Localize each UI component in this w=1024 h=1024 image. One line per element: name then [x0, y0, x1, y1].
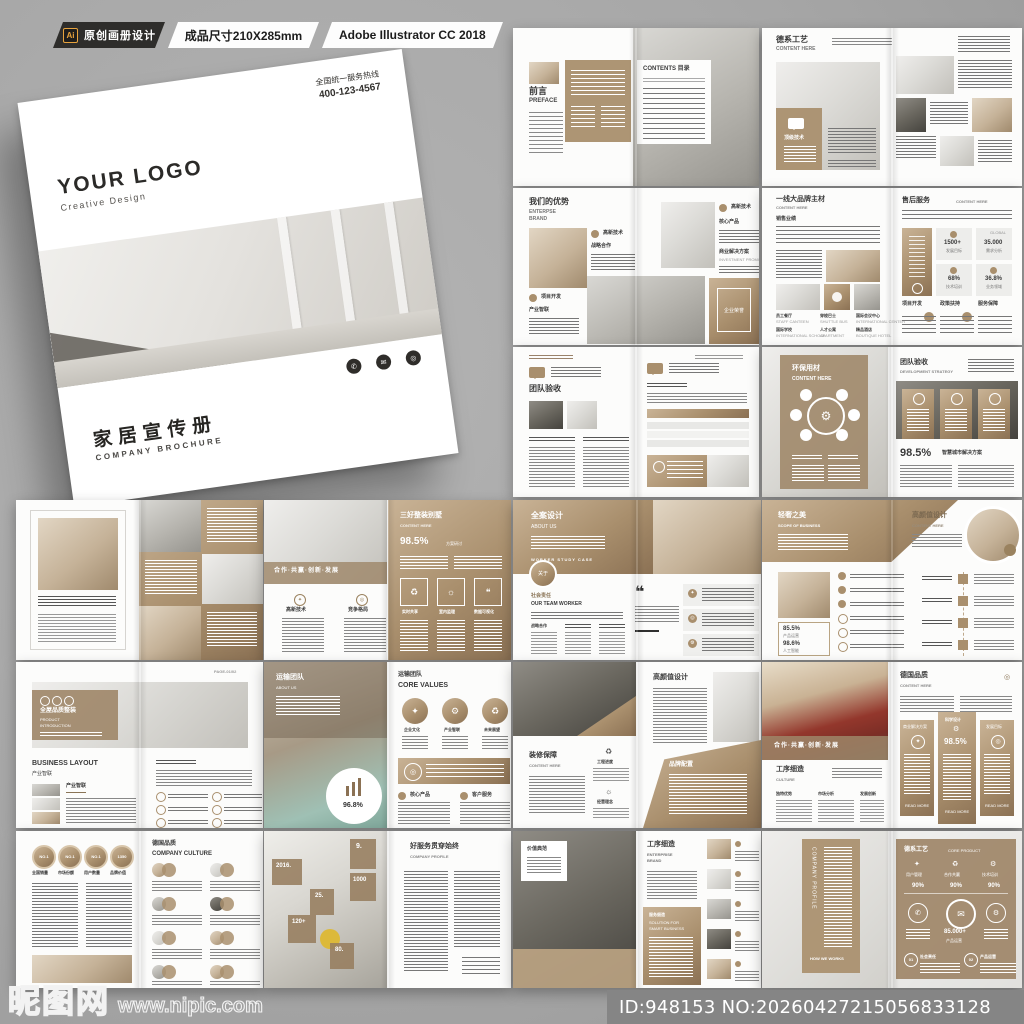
bedroom-photo [202, 554, 263, 604]
medal: NO.1 [84, 845, 108, 869]
spread-title: 运输团队 [276, 674, 304, 682]
circ: ♻ [482, 698, 508, 724]
lines [776, 226, 880, 246]
lines [828, 465, 860, 483]
spread-timeline-profile: 9.2016.100025.120+80.好服务贯穿始终COMPANY PROF… [264, 831, 511, 988]
txt: INTERNATIONAL CENTER [856, 320, 905, 324]
spread-transport-core-values: 运输团队ABOUT US96.8%运输团队CORE VALUES✦⚙♻企业文化产… [264, 662, 511, 828]
wardrobe-photo [139, 500, 201, 552]
lines [940, 316, 974, 336]
illustrator-logo-icon: Ai [63, 28, 78, 43]
lines [38, 596, 116, 608]
panel [958, 596, 968, 606]
lines [776, 800, 812, 822]
circ [220, 931, 234, 945]
circ [735, 871, 741, 877]
lines [653, 688, 707, 744]
lines [922, 598, 952, 604]
sofa-photo [653, 500, 761, 574]
web-icon: ◎ [405, 349, 422, 366]
txt: CONTENT HERE [900, 684, 932, 688]
txt: CONTENT HERE [956, 200, 988, 204]
recycle-icon: ♻ [605, 748, 612, 757]
photo [567, 401, 597, 429]
chat [529, 367, 545, 378]
photo [529, 62, 559, 84]
lines [828, 455, 858, 460]
lines [529, 447, 575, 489]
lines [902, 316, 936, 336]
circ [156, 818, 166, 828]
stat-value: 35.000 [984, 240, 1002, 247]
txt: 科学设计 [945, 718, 961, 722]
lines [643, 88, 705, 140]
photo [529, 401, 563, 429]
lines [474, 620, 502, 652]
txt: CORE PRODUCT [948, 849, 980, 853]
lines [850, 602, 904, 607]
header-segment-software: Adobe Illustrator CC 2018 [322, 22, 503, 48]
txt: ⚙ [953, 726, 959, 734]
txt: 经营理念 [597, 800, 613, 804]
frame: ☼ [437, 578, 465, 606]
spread-title-right: 高颜值设计 [653, 674, 688, 682]
circ [40, 696, 50, 706]
medal: 1350 [110, 845, 134, 869]
lines [599, 632, 625, 654]
circ: ◎ [404, 763, 422, 781]
circ: ⚙ [442, 698, 468, 724]
lines [647, 871, 697, 901]
lines [529, 318, 579, 336]
circ [838, 600, 846, 608]
txt: 方案研讨 [446, 542, 462, 546]
lines [426, 764, 504, 778]
lines [792, 465, 824, 483]
lines [695, 355, 743, 359]
lines [207, 612, 257, 648]
txt: READ MORE [985, 804, 1009, 808]
txt: 企业文化 [404, 728, 420, 732]
circ: ◎ [688, 614, 697, 623]
txt: 发展创新 [860, 792, 876, 796]
txt: 产业智联 [32, 772, 52, 778]
lines [152, 881, 202, 893]
txt: CONTENT HERE [776, 206, 808, 210]
circ [220, 863, 234, 877]
circ [838, 572, 846, 580]
txt: ✦ [914, 861, 920, 869]
circ: ⚙ [986, 903, 1006, 923]
circ: ✦ [402, 698, 428, 724]
lines [735, 911, 759, 921]
txt: 产业智联 [529, 308, 549, 314]
txt: 品牌价值 [110, 871, 126, 875]
txt: 发展目标 [946, 249, 962, 253]
image-id-bar: ID:948153 NO:20260427215056833128 [607, 990, 1024, 1024]
spread-preface-contents: 前言PREFACECONTENTS 目录 [513, 28, 759, 186]
circ [64, 696, 74, 706]
txt: 技术培训 [946, 285, 962, 289]
txt: 社会责任 [920, 955, 936, 959]
stat-value: 98.5% [400, 536, 428, 547]
lines [224, 820, 262, 825]
spread-brand-materials-service: 一线大品牌主材CONTENT HERE销售业绩员工餐厅STAFF CANTEEN… [762, 188, 1022, 345]
header-segment-brand: Ai 原创画册设计 [53, 22, 165, 48]
circ [838, 642, 848, 652]
lines [531, 632, 557, 654]
spread-title: 轻奢之美 [778, 512, 806, 520]
stat-value: 68% [948, 276, 960, 283]
circ [653, 461, 665, 473]
lines [968, 359, 1014, 373]
txt: GLOBAL [990, 231, 1006, 235]
photo [32, 812, 60, 824]
lines [591, 254, 635, 272]
lines [900, 465, 952, 489]
photo [707, 899, 731, 919]
spread-title-right: 三好整装别墅 [400, 512, 442, 520]
photo [776, 284, 820, 310]
stat-value: 1500+ [944, 240, 961, 247]
txt: 核心产品 [410, 793, 430, 799]
phone-icon: ✆ [345, 358, 362, 375]
circ [212, 805, 222, 815]
lines [850, 588, 904, 593]
lines [344, 618, 386, 652]
circ [838, 614, 848, 624]
circle-photo [964, 506, 1022, 564]
lines [583, 437, 629, 443]
spread-title-right: 德国品质 [152, 841, 176, 848]
photo [707, 869, 731, 889]
stat-value: 85.5% [783, 626, 800, 633]
circ [950, 267, 957, 274]
panel [958, 574, 968, 584]
lines [454, 556, 502, 570]
panel [647, 422, 749, 429]
txt: SMART BUSINESS [649, 927, 684, 931]
lines [66, 798, 136, 824]
txt: 未来展望 [484, 728, 500, 732]
txt: 国际会议中心 [856, 314, 880, 318]
lines [900, 696, 954, 712]
circ [836, 389, 848, 401]
txt: SCOPE OF BUSINESS [778, 524, 820, 528]
lines [647, 383, 687, 389]
spread-title-right: 运输团队 [398, 672, 422, 679]
cover-logo: YOUR LOGO Creative Design [56, 156, 206, 213]
txt: ABOUT US [276, 686, 296, 690]
txt: APARTMENT [820, 334, 844, 338]
circ [800, 429, 812, 441]
circ [800, 389, 812, 401]
lines [906, 929, 930, 939]
lines [832, 38, 892, 46]
circ [212, 792, 222, 802]
lines [529, 355, 573, 359]
lines [565, 632, 591, 654]
stat-value: 96.8% [343, 802, 363, 810]
photo [896, 56, 954, 94]
lines [531, 612, 623, 620]
cover-hotline: 全国统一服务热线 400-123-4567 [315, 68, 382, 101]
lines [958, 36, 1010, 52]
panel [958, 640, 968, 650]
txt: COMPANY CULTURE [152, 851, 212, 858]
chat [647, 363, 663, 374]
lines [404, 871, 448, 973]
lines [974, 596, 1014, 608]
txt: SOLUTION FOR [649, 921, 679, 925]
panel [346, 786, 349, 796]
txt: CULTURE [776, 778, 795, 782]
spread-title: 德系工艺 [776, 36, 808, 45]
lines [402, 736, 428, 750]
slogan: 合作·共赢·创新·发展 [274, 568, 339, 575]
txt: 发展目标 [986, 725, 1002, 729]
spread-team-acceptance: 团队验收 [513, 347, 759, 497]
circ [790, 409, 802, 421]
spread-light-luxury: 轻奢之美SCOPE OF BUSINESS高颜值设计CONTENT HERE85… [762, 500, 1022, 660]
lines [974, 640, 1014, 652]
txt: COMPANY PROFILE [410, 855, 449, 859]
lines [210, 915, 260, 927]
lines [593, 768, 629, 782]
lines [454, 871, 500, 949]
lines [719, 266, 759, 274]
lines [210, 949, 260, 961]
circ: ✦ [294, 594, 306, 606]
spread-company-profile-core: COMPANY PROFILEHOW WE WORKS德系工艺CORE PROD… [762, 831, 1022, 988]
software-label: Adobe Illustrator CC 2018 [327, 28, 498, 42]
slogan: 合作·共赢·创新·发展 [774, 743, 839, 750]
contact-icons: ✆ ✉ ◎ [345, 349, 421, 374]
lines [832, 768, 882, 778]
circ [950, 231, 957, 238]
txt: CONTENT HERE [529, 764, 561, 768]
spread-title: 环保用材 [792, 365, 820, 373]
print-size-label: 成品尺寸210X285mm [173, 27, 314, 44]
spread-title-right: 工序细造 [647, 841, 675, 849]
spread-german-craft: 德系工艺CONTENT HERE顶级技术 [762, 28, 1022, 186]
panel [647, 431, 749, 438]
lines [527, 857, 561, 875]
txt: ♻ [952, 861, 958, 869]
stat-value: 36.8% [985, 276, 1002, 283]
lines [156, 760, 196, 766]
txt: 产业智联 [444, 728, 460, 732]
txt: 技术培训 [982, 873, 998, 877]
circ: ✦ [911, 735, 925, 749]
lines [210, 881, 260, 893]
circ [398, 792, 406, 800]
spread-title: 一线大品牌主材 [776, 196, 825, 204]
lines [776, 250, 822, 278]
spread-value-process: 价值典范工序细造ENTERPRISEBRAND服务细造SOLUTION FORS… [513, 831, 761, 988]
panel [647, 409, 749, 418]
stat-value: 98.5% [944, 738, 967, 747]
txt: 服务保障 [978, 302, 998, 308]
lines [643, 78, 705, 84]
bookshelf-photo [587, 276, 705, 344]
txt: 实时共享 [402, 610, 418, 614]
txt: 核心产品 [719, 220, 739, 226]
lines [156, 770, 252, 786]
circ [591, 230, 599, 238]
lines [38, 614, 116, 642]
txt: CORE VALUES [398, 682, 448, 690]
txt: 市场份额 [58, 871, 74, 875]
lines [462, 957, 500, 975]
txt: 战略合作 [531, 624, 547, 628]
lines [960, 696, 1012, 712]
lines [958, 60, 1012, 88]
bedroom-photo-2 [139, 606, 201, 660]
stat-value: 98.5% [900, 447, 931, 459]
lines [667, 461, 703, 479]
circ [162, 931, 176, 945]
lines [778, 534, 848, 552]
stat-value: 90% [988, 883, 1000, 890]
vertical-title: COMPANY PROFILE [810, 847, 816, 910]
lines [860, 800, 884, 822]
stat-value: 85.000+ [944, 929, 966, 936]
stat-value: 98.6% [783, 641, 800, 648]
txt: INTERNATIONAL SCHOOL [776, 334, 826, 338]
circ: ✆ [908, 903, 928, 923]
spread-title: 我们的优势 [529, 198, 569, 207]
lines [40, 732, 102, 738]
circ [162, 897, 176, 911]
lines [460, 802, 510, 824]
lines [168, 820, 208, 825]
panel [904, 893, 1008, 894]
txt: 商业解决方案 [903, 725, 927, 729]
stock-image-canvas: Ai 原创画册设计 成品尺寸210X285mm Adobe Illustrato… [0, 0, 1024, 1024]
panel-title: 品牌配置 [669, 762, 693, 769]
txt: 业务领域 [986, 285, 1002, 289]
lines [599, 624, 625, 629]
lines [909, 236, 925, 280]
txt: 高新技术 [731, 205, 751, 211]
txt: 高新技术 [603, 231, 623, 237]
lines [896, 136, 936, 160]
txt: DEVELOPMENT STRATEGY [900, 370, 953, 374]
site-watermark: 昵图网 www.nipic.com [8, 976, 263, 1022]
photo [826, 250, 880, 282]
lines [922, 576, 952, 582]
txt: 国际学校 [776, 328, 792, 332]
timeline-value: 25. [315, 893, 323, 900]
circ [832, 292, 842, 302]
txt: 产品运营 [980, 955, 996, 959]
circ [460, 792, 468, 800]
txt: BRAND [647, 859, 661, 863]
page-fold [133, 831, 147, 988]
lines [32, 883, 78, 949]
txt: 工程进度 [597, 760, 613, 764]
photo [707, 839, 731, 859]
spread-title: 团队验收 [529, 385, 561, 394]
circ [951, 393, 963, 405]
lines [398, 802, 450, 824]
brochure-cover-mockup: YOUR LOGO Creative Design 全国统一服务热线 400-1… [17, 49, 458, 507]
txt: 用户数量 [84, 871, 100, 875]
medal: NO.1 [32, 845, 56, 869]
lines [276, 696, 340, 716]
lines [669, 774, 747, 814]
txt: 市场分析 [818, 792, 834, 796]
panel [762, 500, 958, 562]
txt: 人工智能 [783, 649, 799, 653]
lines [735, 971, 759, 981]
frame: ❝ [474, 578, 502, 606]
lines [152, 915, 202, 927]
txt: 项目开发 [902, 302, 922, 308]
txt: ABOUT US [531, 525, 556, 531]
spread-full-design-about: 全案设计ABOUT USWORKER STUDY CASE关于社会责任OUR T… [513, 500, 761, 660]
circ: ◎ [991, 735, 1005, 749]
txt: 高新技术 [286, 608, 306, 614]
spread-our-advantages: 我们的优势ENTERPSEBRAND高新技术战略合作项目开发产业智联高新技术核心… [513, 188, 759, 345]
lines [922, 642, 952, 648]
lines [583, 447, 629, 489]
spread-title-right: 高颜值设计 [912, 512, 947, 520]
txt: 需求分析 [986, 249, 1002, 253]
txt: 独特优势 [776, 792, 792, 796]
page-number: PAGE-01/02 [214, 670, 236, 674]
header-ribbon: Ai 原创画册设计 成品尺寸210X285mm Adobe Illustrato… [58, 22, 498, 48]
lines [974, 618, 1014, 630]
spread-title: 全案设计 [531, 512, 563, 521]
circ [719, 204, 727, 212]
watermark-site-name: 昵图网 [8, 976, 110, 1022]
spread-renovation-guarantee: 装修保障CONTENT HERE♻工程进度☼经营理念高颜值设计品牌配置 [513, 662, 761, 828]
photo [940, 136, 974, 166]
section-title: BUSINESS LAYOUT [32, 760, 98, 768]
lines [974, 574, 1014, 586]
txt: 产品运营 [783, 634, 799, 638]
circ: ◎ [356, 594, 368, 606]
lines [593, 808, 629, 820]
spread-villa-package: 合作·共赢·创新·发展✦高新技术◎竞争格局三好整装别墅CONTENT HERE9… [264, 500, 511, 660]
spread-title-right: 德系工艺 [904, 847, 928, 854]
hallway-photo [778, 572, 830, 618]
txt: 顶级技术 [784, 136, 804, 142]
spread-title: 前言 [529, 86, 547, 96]
lines [482, 736, 508, 750]
txt: 产业智联 [66, 784, 86, 790]
lines [984, 754, 1010, 794]
timeline-value: 80. [335, 947, 343, 954]
txt: BRAND [529, 217, 547, 223]
lines [945, 409, 967, 433]
txt: 产品运营 [946, 939, 962, 943]
txt: 室内监理 [439, 610, 455, 614]
txt: 销售业绩 [776, 217, 796, 223]
txt: INTRODUCTION [40, 724, 71, 728]
lines [922, 620, 952, 626]
txt: 客户服务 [472, 793, 492, 799]
circ [156, 805, 166, 815]
lines [958, 465, 1014, 489]
lines [571, 106, 595, 128]
panel [66, 792, 86, 793]
spread-no1-culture: NO.1NO.1NO.11350全国销量市场份额用户数量品牌价值德国品质COMP… [16, 831, 263, 988]
lines [442, 736, 468, 750]
circ [326, 768, 382, 824]
